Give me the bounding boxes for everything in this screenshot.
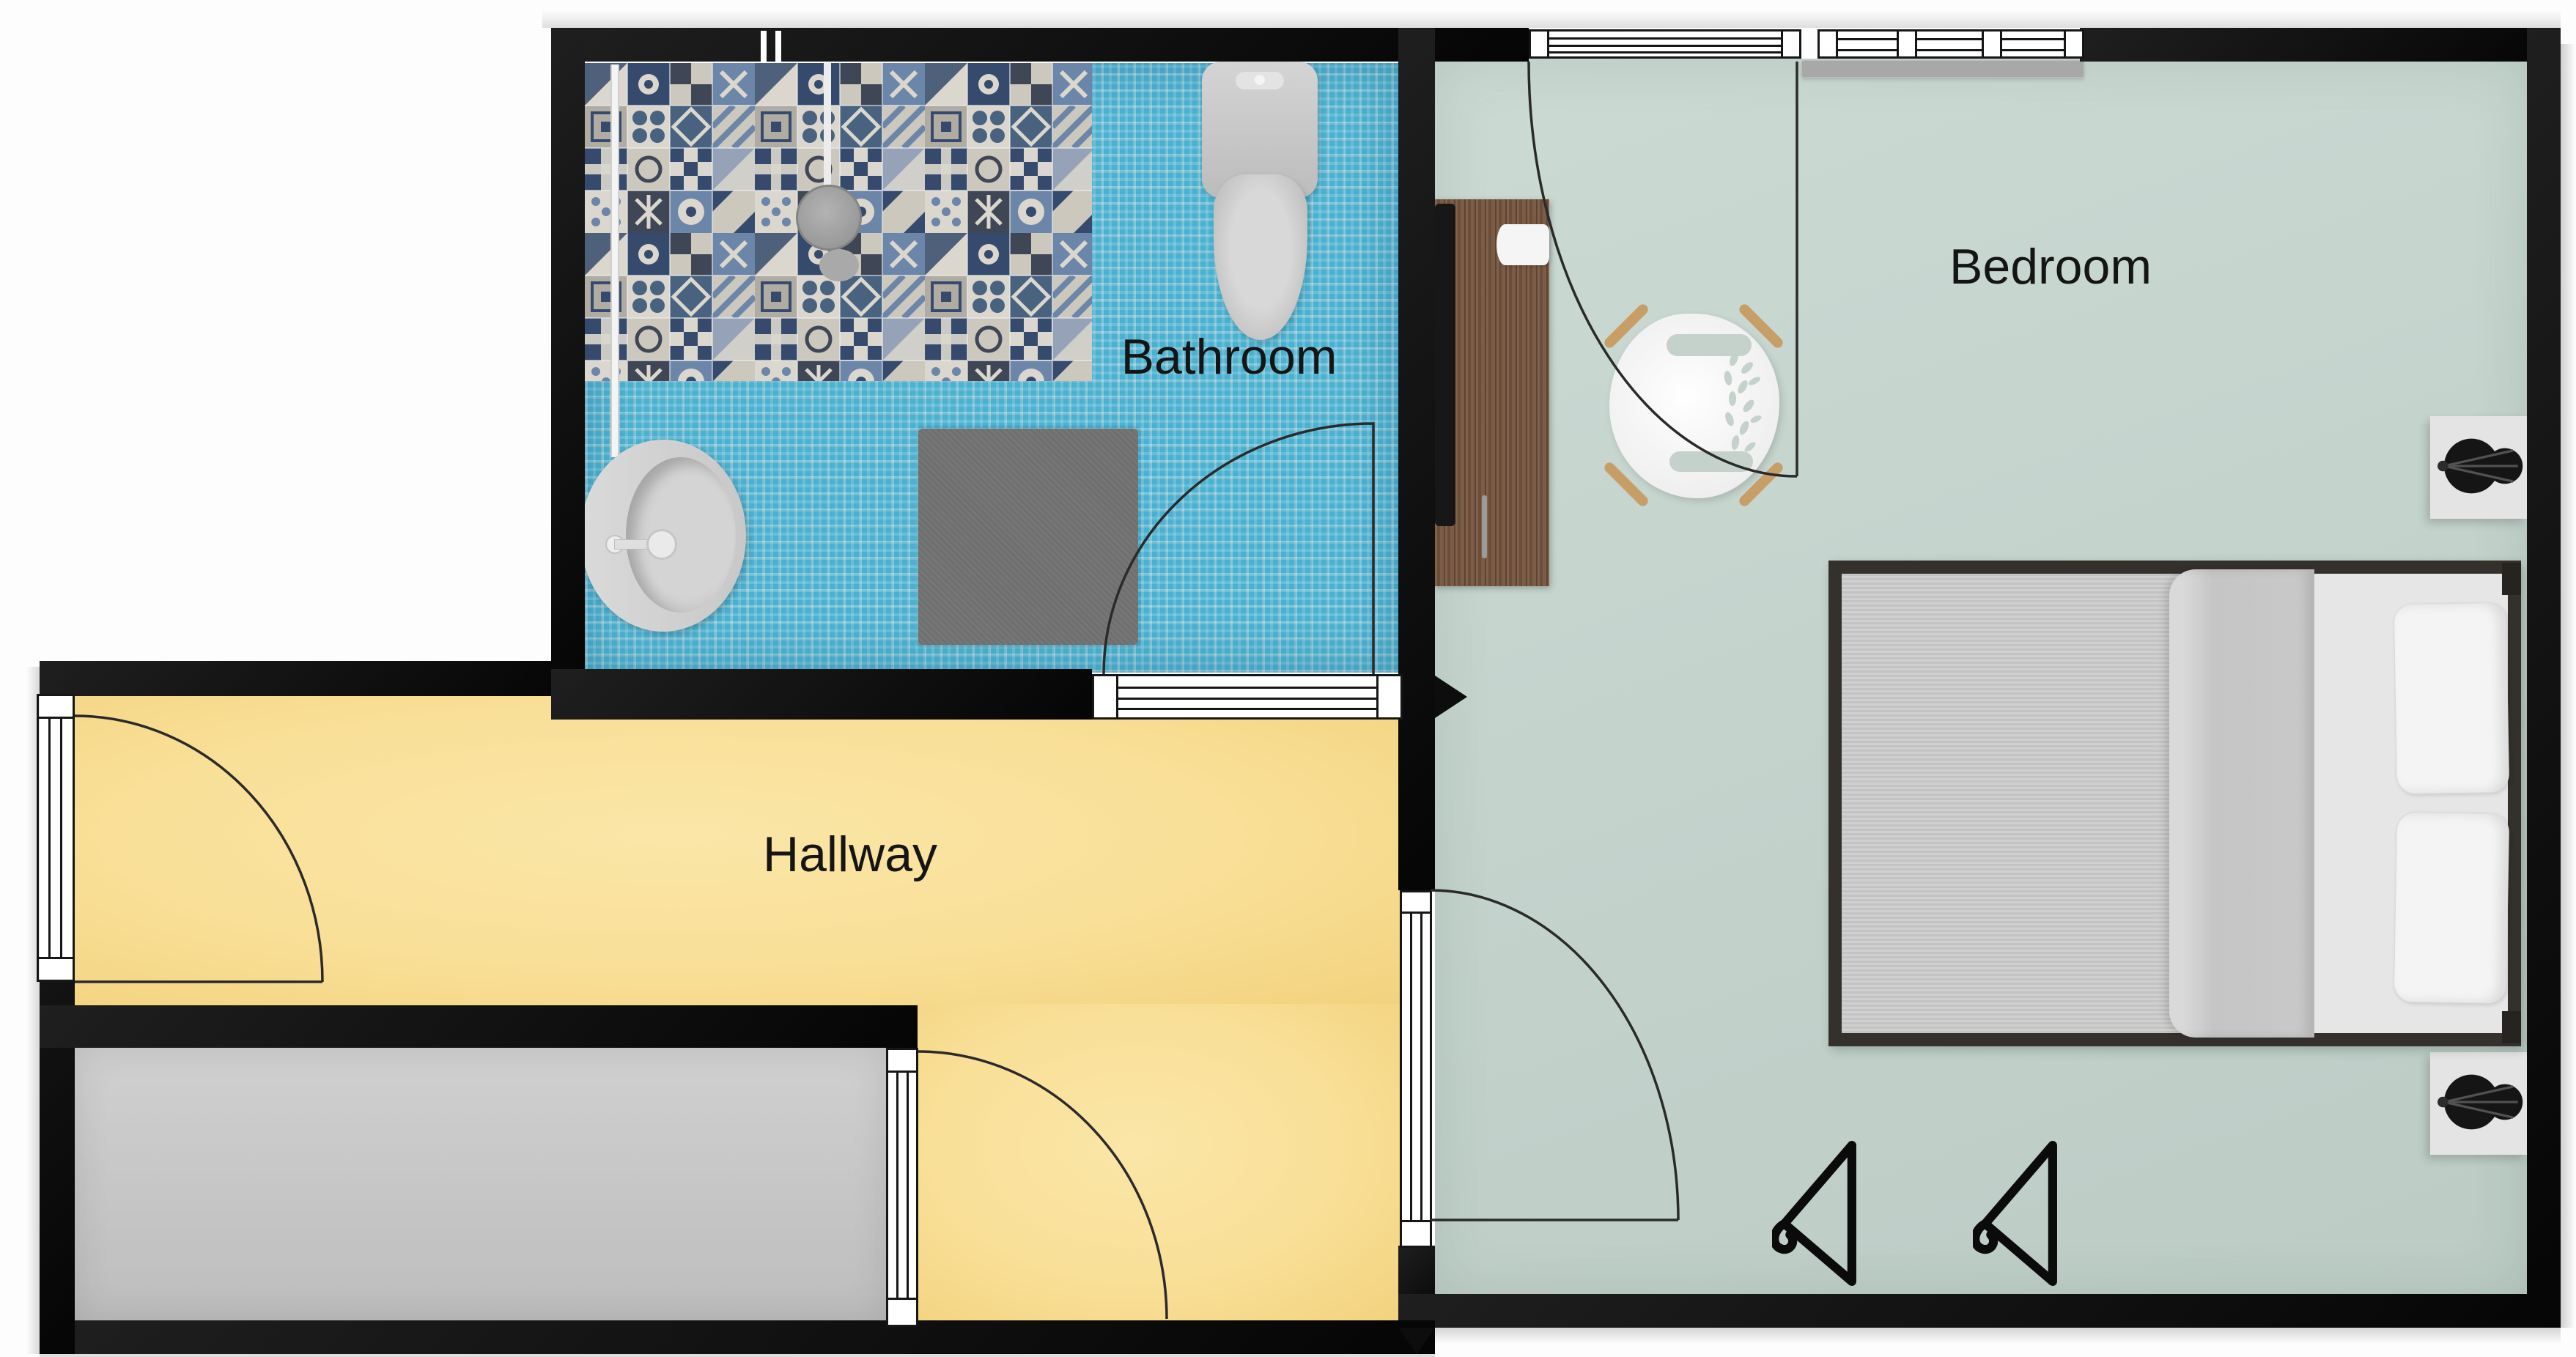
shower-head [796,185,862,251]
shadow [2561,44,2575,1328]
door-storage [886,1048,918,1323]
wall-bottom-bedroom [1398,1294,2561,1328]
window-mullion [1817,29,1838,59]
floor-plan: Bathroom Bedroom Hallway [0,0,2576,1357]
bed-post [2502,1011,2521,1043]
wall-hall-top-outer [40,661,585,696]
table-lamp [2435,1068,2530,1136]
window-mullion [1897,29,1917,59]
monitor [1435,204,1455,526]
wall-pipe-mark [761,31,767,62]
shadow [40,1354,1435,1357]
bed-duvet [2169,569,2314,1038]
window [1817,29,2080,59]
shower-knob [819,249,859,281]
hallway-floor-arm [918,1004,1401,1320]
bathroom-label: Bathroom [1121,332,1337,382]
wall-under-bathroom [551,669,1092,720]
hallway-label: Hallway [763,829,937,879]
radiator [1801,60,2084,78]
window-mullion [1982,29,2002,59]
double-bed [1828,561,2521,1046]
pen [1482,495,1487,558]
toilet-button-dot [1255,75,1265,85]
sink-bowl [626,457,736,613]
shadow [542,10,2561,28]
desk-chair [1602,308,1787,504]
wall-storage-top [40,1005,918,1048]
shadow [1435,1328,2561,1344]
door-bedroom-entry [1529,29,1797,59]
pillow [2394,812,2510,1005]
wall-bath-left [551,28,585,696]
bed-post [2502,563,2521,595]
shower-pipe [824,63,831,193]
hanger-icon [1973,1133,2062,1294]
pillow [2394,602,2510,795]
chair-leaf-cutouts [1712,349,1771,459]
bed-mattress [1842,574,2184,1033]
wall-bottom-left [40,1320,1435,1354]
faucet-spout [646,529,677,560]
bedroom-label: Bedroom [1949,242,2152,292]
door-bathroom [1092,674,1401,720]
storage-room-floor [75,1048,886,1320]
wall-divider [1398,28,1435,890]
window-mullion [2064,29,2084,59]
bath-rug [918,429,1138,645]
paper [1496,224,1549,265]
door-hallway-bedroom [1400,890,1432,1246]
table-lamp [2435,432,2530,500]
wall-top-right [2080,28,2561,62]
hanger-icon [1772,1133,1861,1294]
hallway-floor [73,696,1401,1005]
wall-pipe-mark [775,31,781,62]
wall-right [2527,28,2561,1328]
wall-top-left [551,28,1529,62]
shadow [26,667,40,1354]
shower-screen [610,64,619,457]
door-hallway-entry [37,694,75,980]
